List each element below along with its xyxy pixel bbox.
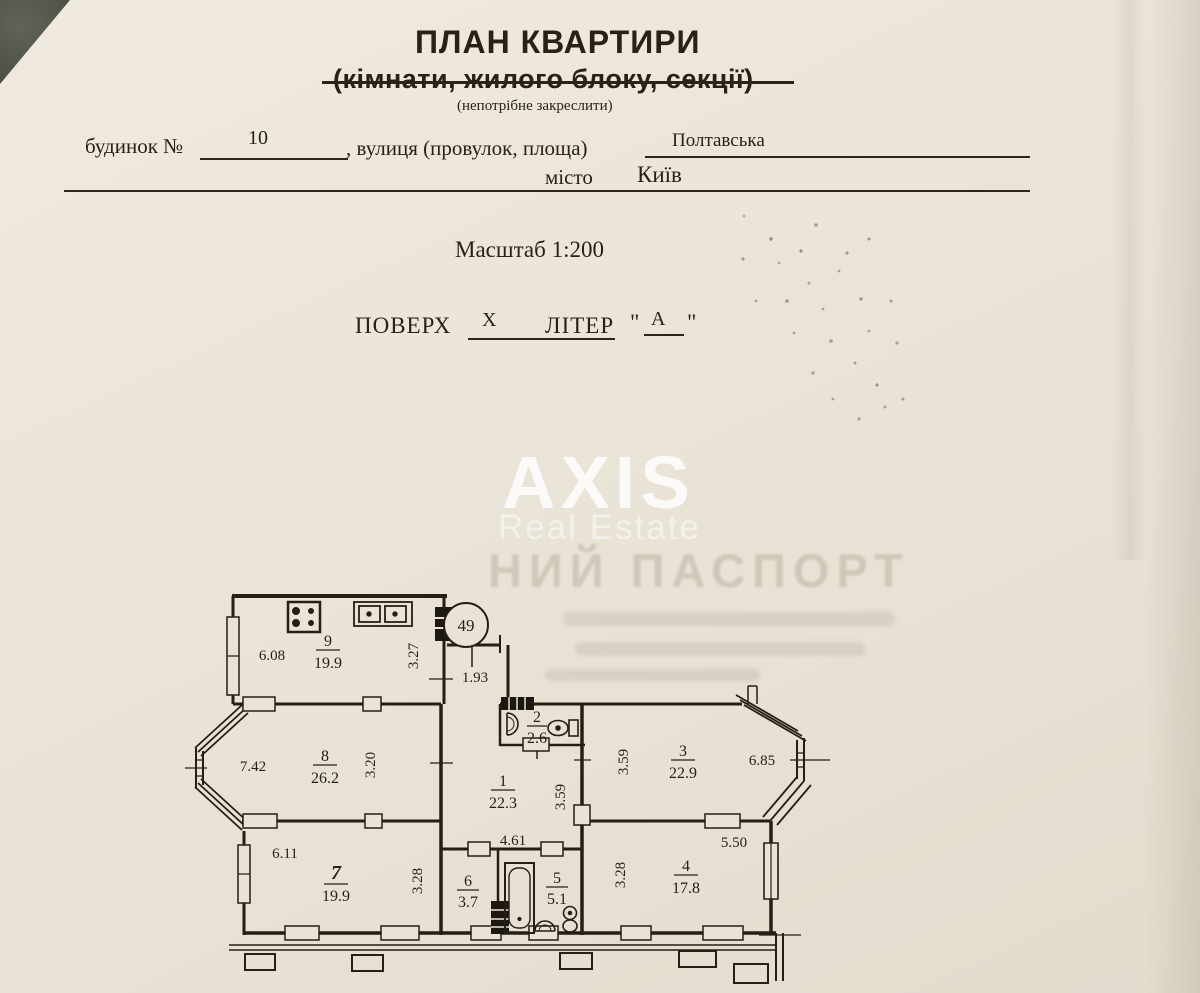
scanned-page: ПЛАН КВАРТИРИ (кімнати, жилого блоку, се… bbox=[0, 0, 1200, 993]
room-label-2: 2 2.6 bbox=[527, 709, 547, 747]
room-label-6: 6 3.7 bbox=[457, 873, 479, 911]
room-number: 8 bbox=[321, 748, 329, 765]
kitchen-sink-icon bbox=[354, 602, 412, 626]
room-area: 3.7 bbox=[458, 894, 478, 911]
room-label-9: 9 19.9 bbox=[314, 633, 342, 672]
dim-room8-width: 7.42 bbox=[240, 759, 266, 775]
dim-kitchen-depth: 3.27 bbox=[406, 642, 422, 669]
city-underline bbox=[64, 190, 1030, 192]
watermark-subtitle: Real Estate bbox=[498, 508, 701, 548]
scale-text: Масштаб 1:200 bbox=[455, 237, 604, 263]
room-label-5: 5 5.1 bbox=[546, 870, 568, 908]
dim-kitchen-width: 6.08 bbox=[259, 648, 285, 664]
room-area: 19.9 bbox=[322, 888, 350, 905]
page-title: ПЛАН КВАРТИРИ bbox=[415, 24, 701, 61]
letter-close-quote: " bbox=[687, 310, 697, 336]
building-label: будинок № bbox=[85, 134, 183, 159]
building-underline bbox=[200, 158, 348, 160]
room-area: 19.9 bbox=[314, 655, 342, 672]
dim-hall-width: 4.61 bbox=[500, 833, 526, 849]
room-number: 4 bbox=[682, 858, 690, 875]
dim-room4-depth: 3.28 bbox=[613, 862, 629, 888]
floor-plan: 49 9 19.9 2 2.6 8 26.2 1 22.3 3 22.9 bbox=[185, 583, 835, 993]
street-underline bbox=[645, 156, 1030, 158]
letter-underline bbox=[644, 334, 684, 336]
dim-room3-depth: 3.59 bbox=[616, 749, 632, 775]
dim-room8-depth: 3.20 bbox=[363, 752, 379, 778]
floor-label: ПОВЕРХ bbox=[355, 313, 451, 339]
letter-value: А bbox=[651, 308, 665, 331]
paper-edge-shade bbox=[1145, 0, 1200, 993]
room-label-3: 3 22.9 bbox=[669, 743, 697, 782]
building-number: 10 bbox=[248, 127, 268, 150]
street-value: Полтавська bbox=[672, 130, 765, 152]
room-area: 17.8 bbox=[672, 880, 700, 897]
ink-speckles bbox=[0, 0, 2, 2]
room-number: 9 bbox=[324, 633, 332, 650]
table-corner bbox=[0, 0, 70, 84]
stove-icon bbox=[288, 602, 320, 632]
dim-room7-depth: 3.28 bbox=[410, 868, 426, 894]
room-number: 1 bbox=[499, 773, 507, 790]
room-area: 22.3 bbox=[489, 795, 517, 812]
room-number: 2 bbox=[533, 709, 541, 726]
vent-shaft-icon bbox=[435, 607, 534, 934]
dim-entry: 1.93 bbox=[462, 670, 488, 686]
room-label-1: 1 22.3 bbox=[489, 773, 517, 812]
apartment-number: 49 bbox=[458, 616, 475, 635]
room-number: 7 bbox=[331, 862, 342, 884]
room-area: 2.6 bbox=[527, 730, 547, 747]
room-area: 26.2 bbox=[311, 770, 339, 787]
apartment-number-badge: 49 bbox=[444, 603, 488, 647]
room-number: 6 bbox=[464, 873, 472, 890]
room-label-7: 7 19.9 bbox=[322, 862, 350, 905]
room-number: 5 bbox=[553, 870, 561, 887]
room-number: 3 bbox=[679, 743, 687, 760]
letter-label: ЛІТЕР bbox=[545, 313, 614, 339]
room-label-8: 8 26.2 bbox=[311, 748, 339, 787]
page-note: (непотрібне закреслити) bbox=[457, 98, 613, 115]
plan-walls bbox=[185, 596, 830, 935]
city-label: місто bbox=[545, 165, 593, 190]
dim-room4-width: 5.50 bbox=[721, 835, 747, 851]
bathtub-icon bbox=[505, 863, 534, 933]
floor-value: X bbox=[482, 309, 496, 332]
washbasin-icon bbox=[507, 713, 518, 735]
room-area: 5.1 bbox=[547, 891, 567, 908]
toilet-icon bbox=[563, 907, 577, 933]
page-subtitle: (кімнати, жилого блоку, секції) bbox=[333, 64, 754, 95]
toilet-icon bbox=[548, 720, 578, 736]
paper-fold bbox=[1112, 0, 1146, 560]
room-label-4: 4 17.8 bbox=[672, 858, 700, 897]
dim-hall-depth: 3.59 bbox=[553, 784, 569, 810]
dim-room3-width: 6.85 bbox=[749, 753, 775, 769]
strikethrough-line bbox=[322, 81, 794, 84]
dim-room7-width: 6.11 bbox=[272, 846, 298, 862]
room-area: 22.9 bbox=[669, 765, 697, 782]
letter-open-quote: " bbox=[630, 310, 640, 336]
street-label: , вулиця (провулок, площа) bbox=[346, 136, 588, 161]
city-value: Київ bbox=[637, 162, 682, 188]
